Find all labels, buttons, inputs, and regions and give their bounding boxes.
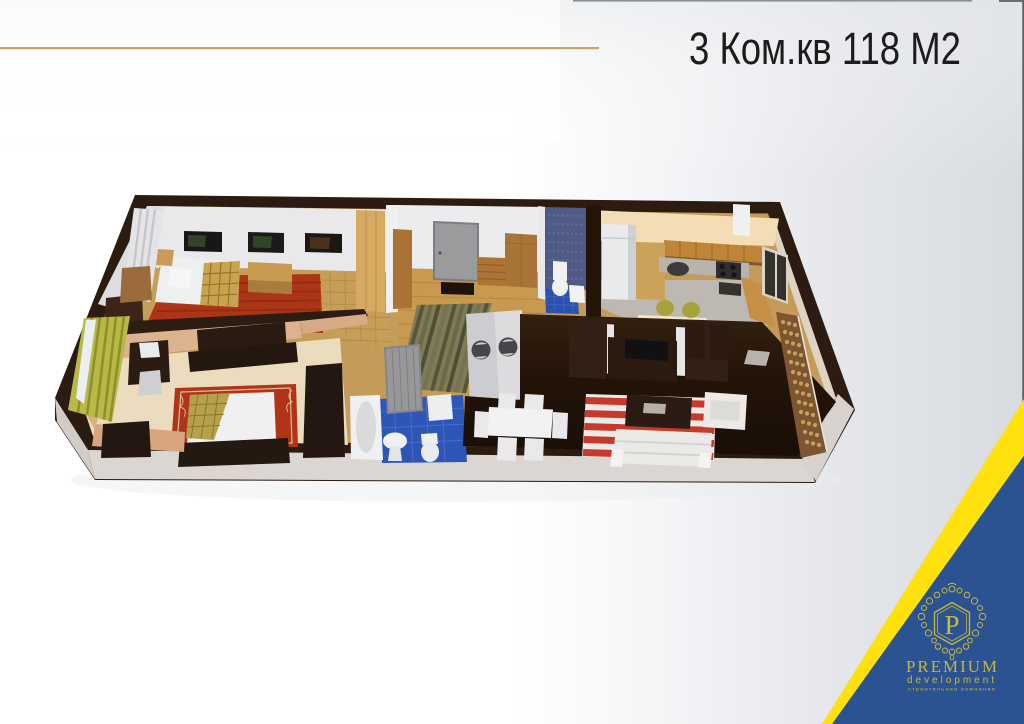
svg-text:P: P <box>944 610 959 640</box>
svg-text:PREMIUM: PREMIUM <box>906 657 999 676</box>
svg-text:development: development <box>907 675 997 686</box>
svg-text:строительная компания: строительная компания <box>908 687 996 692</box>
svg-text:3 Ком.кв 118 М2: 3 Ком.кв 118 М2 <box>689 23 961 74</box>
